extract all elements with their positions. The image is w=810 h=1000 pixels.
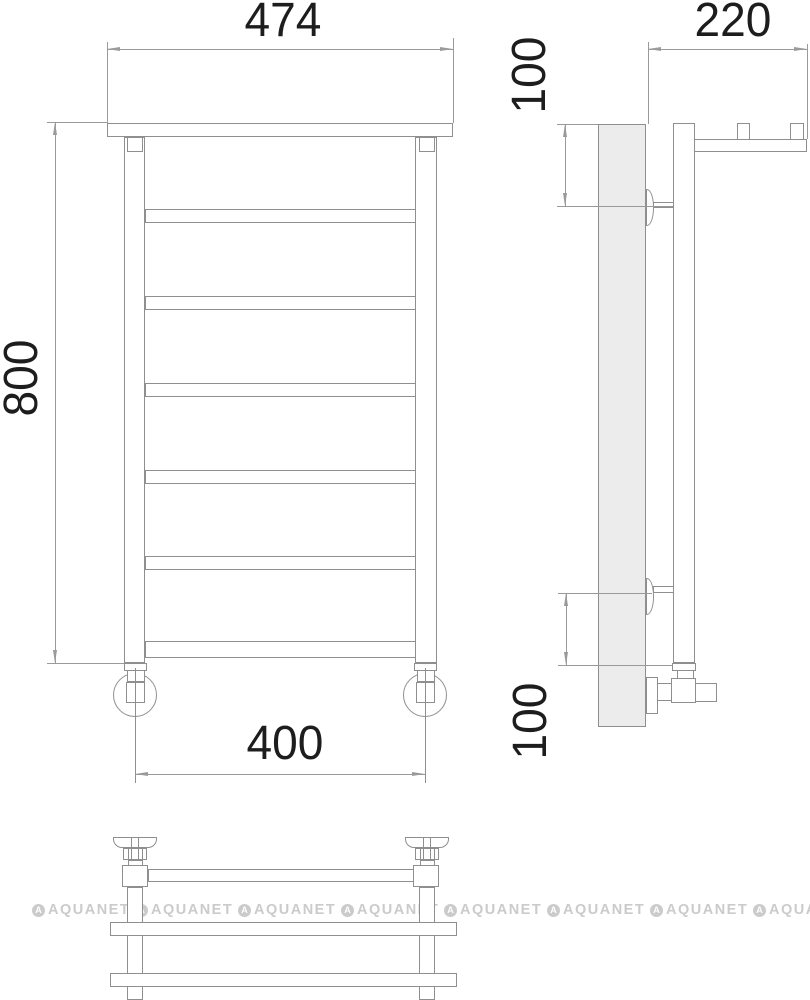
right-shelf-bracket: [419, 137, 435, 152]
rung-5: [145, 556, 416, 570]
rung-3: [145, 383, 416, 397]
dim-400-arrow-left: [135, 772, 148, 776]
rung-1: [145, 209, 416, 223]
dim-474-ext-right: [453, 38, 454, 123]
rung-4: [145, 470, 416, 484]
dim-100-bottom-label: 100: [507, 683, 555, 760]
dim-800-line: [55, 122, 56, 663]
dim-474-arrow-left: [107, 47, 120, 51]
dim-220-ext-left: [648, 42, 649, 124]
lower-bracket-arm: [653, 586, 674, 593]
dim-100-bottom-arrow-up: [564, 593, 568, 606]
dim-474-label: 474: [245, 0, 322, 45]
side-valve-handle: [695, 683, 717, 702]
right-valve-centerline: [425, 668, 426, 783]
dim-400-label: 400: [247, 720, 324, 768]
left-valve-centerline: [135, 668, 136, 783]
towel-rail-technical-drawing: AAQUANET AAQUANET AAQUANET AAQUANET AAQU…: [0, 0, 810, 1000]
dim-100-bottom-ext-lower: [558, 665, 672, 666]
topview-right-valve-body: [413, 865, 439, 887]
lower-bracket-flange: [646, 578, 654, 615]
dim-800-label: 800: [0, 340, 46, 417]
dim-220-arrow-left: [648, 47, 661, 51]
dim-220-label: 220: [695, 0, 772, 45]
side-shelf-slab: [694, 139, 807, 152]
right-post: [415, 137, 437, 663]
dim-100-top-arrow-up: [563, 124, 567, 137]
dim-400-line: [135, 774, 425, 775]
dim-220-arrow-right: [794, 47, 807, 51]
wall-profile: [598, 124, 646, 727]
shelf-rail-rear-section: [790, 123, 804, 140]
dim-474-line: [107, 49, 453, 50]
dim-220-ext-right: [807, 44, 808, 139]
drawing-layer: 474 800 400: [0, 0, 810, 1000]
side-post: [673, 123, 695, 663]
dim-100-top-label: 100: [506, 37, 554, 114]
left-post: [124, 137, 145, 663]
dim-100-bottom-ext-upper: [558, 593, 652, 594]
dim-100-top-arrow-down: [563, 193, 567, 206]
dim-220-line: [648, 49, 807, 50]
side-valve-body: [671, 678, 696, 703]
upper-bracket-flange: [646, 189, 654, 226]
left-shelf-bracket: [127, 137, 143, 152]
upper-bracket-arm: [653, 202, 674, 208]
dim-474-arrow-right: [440, 47, 453, 51]
topview-shelf-rear-bar: [110, 973, 457, 987]
top-shelf: [107, 123, 453, 137]
bottom-collector-tube: [145, 641, 416, 658]
right-valve-neck: [417, 670, 435, 682]
topview-left-valve-body: [122, 865, 148, 887]
dim-800-arrow-bottom: [53, 650, 57, 663]
dim-474-ext-left: [107, 42, 108, 123]
topview-shelf-front-bar: [110, 922, 457, 936]
side-supply-pipe: [657, 683, 672, 701]
dim-100-top-ext-lower: [557, 206, 673, 207]
topview-collector-tube: [148, 869, 414, 882]
topview-right-valve-stem: [423, 837, 431, 860]
dim-100-bottom-arrow-down: [564, 652, 568, 665]
left-valve-neck: [127, 670, 145, 682]
dim-800-arrow-top: [53, 122, 57, 135]
dim-400-arrow-right: [412, 772, 425, 776]
topview-left-valve-stem: [131, 837, 139, 860]
rung-2: [145, 296, 416, 310]
shelf-rail-front-section: [737, 123, 750, 140]
dim-800-ext-bottom: [47, 663, 124, 664]
